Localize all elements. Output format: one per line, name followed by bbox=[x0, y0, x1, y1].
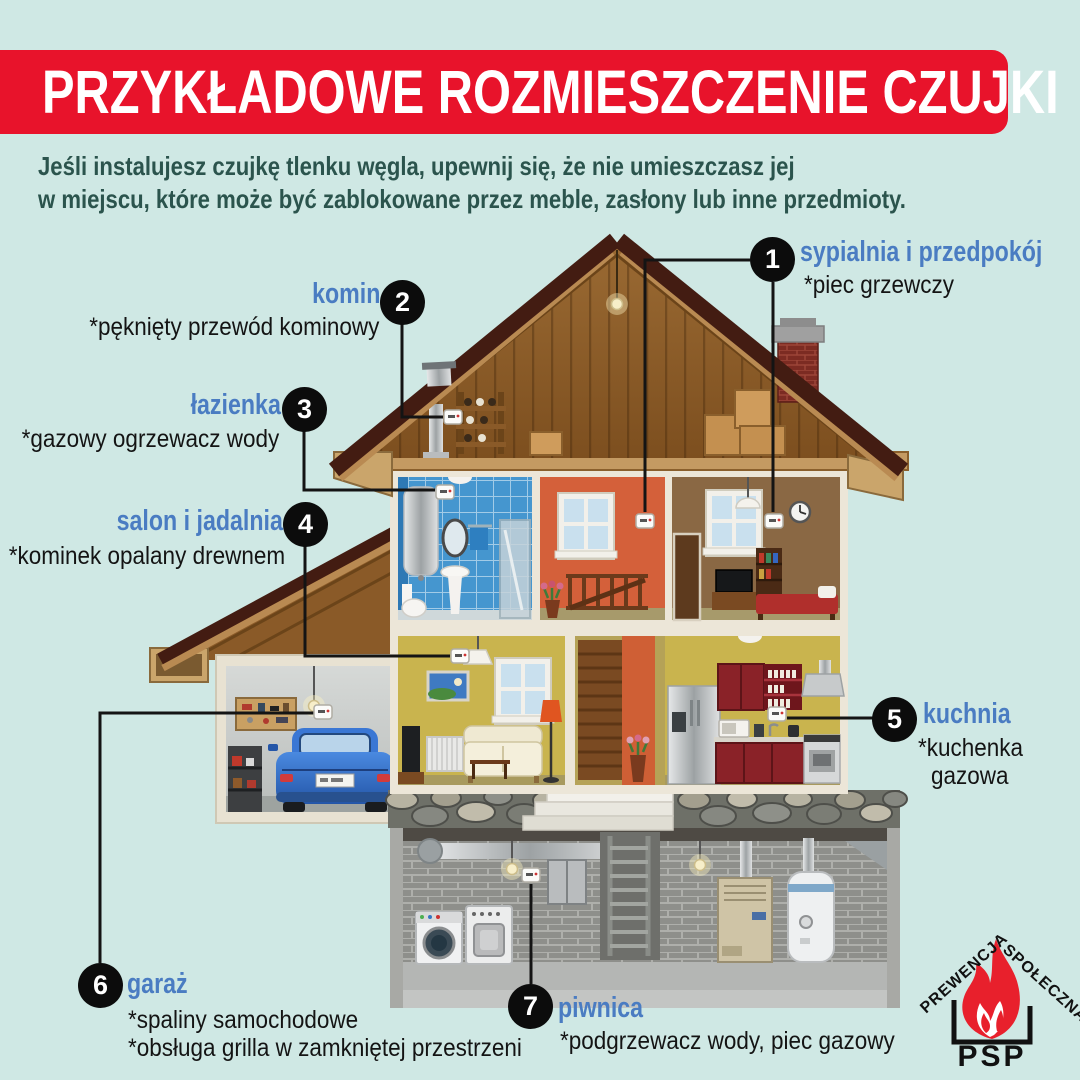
psp-prevention-logo: PREWENCJA SPOŁECZNA PSP bbox=[912, 918, 1080, 1080]
living-room bbox=[398, 636, 565, 785]
detector-living-room bbox=[451, 649, 469, 663]
marker-5: 5 bbox=[872, 697, 917, 742]
marker-1: 1 bbox=[750, 237, 795, 282]
detector-basement bbox=[522, 868, 540, 882]
label-garage-note-2: *obsługa grilla w zamkniętej przestrzeni bbox=[128, 1034, 566, 1063]
header-banner: PRZYKŁADOWE ROZMIESZCZENIE CZUJKI bbox=[0, 50, 1008, 134]
garage-shelf bbox=[228, 746, 262, 812]
detector-bedroom bbox=[765, 514, 783, 528]
label-garage-note-1: *spaliny samochodowe bbox=[128, 1006, 384, 1035]
label-basement-title: piwnica bbox=[558, 992, 664, 1025]
infographic-canvas: PRZYKŁADOWE ROZMIESZCZENIE CZUJKI Jeśli … bbox=[0, 0, 1080, 1080]
detector-attic-flue bbox=[444, 410, 462, 424]
label-kitchen-note-1: *kuchenka bbox=[918, 734, 1035, 763]
label-bedroom-hallway-note: *piec grzewczy bbox=[804, 271, 971, 300]
dryer bbox=[466, 906, 512, 964]
label-bathroom-note: *gazowy ogrzewacz wody bbox=[0, 425, 279, 454]
intro-line-1: Jeśli instalujesz czujkę tlenku węgla, u… bbox=[38, 150, 795, 183]
basement bbox=[390, 826, 900, 1008]
bathroom bbox=[398, 477, 532, 620]
detector-hallway bbox=[636, 514, 654, 528]
label-kitchen-title: kuchnia bbox=[923, 698, 1033, 731]
label-chimney-note: *pęknięty przewód kominowy bbox=[57, 313, 379, 342]
label-chimney-title: komin bbox=[295, 278, 380, 311]
detector-garage bbox=[314, 705, 332, 719]
marker-2: 2 bbox=[380, 280, 425, 325]
staircase bbox=[575, 636, 665, 785]
page-title: PRZYKŁADOWE ROZMIESZCZENIE CZUJKI bbox=[42, 57, 1059, 127]
label-bedroom-hallway-title: sypialnia i przedpokój bbox=[800, 236, 1080, 269]
marker-6: 6 bbox=[78, 963, 123, 1008]
intro-line-2: w miejscu, które może być zablokowane pr… bbox=[38, 183, 906, 216]
marker-7: 7 bbox=[508, 984, 553, 1029]
marker-4: 4 bbox=[283, 502, 328, 547]
garage bbox=[216, 655, 402, 823]
washer bbox=[416, 912, 462, 964]
kitchen bbox=[665, 636, 844, 785]
label-basement-note: *podgrzewacz wody, piec gazowy bbox=[560, 1027, 932, 1056]
label-garage-title: garaż bbox=[127, 968, 203, 1001]
detector-kitchen bbox=[768, 707, 786, 721]
foundation bbox=[386, 788, 907, 830]
intro-text: Jeśli instalujesz czujkę tlenku węgla, u… bbox=[38, 150, 1059, 216]
furnace bbox=[718, 878, 772, 962]
detector-bathroom bbox=[436, 485, 454, 499]
water-heater-basement bbox=[788, 872, 834, 962]
logo-abbr-psp: PSP bbox=[957, 1040, 1026, 1073]
label-bathroom-title: łazienka bbox=[168, 389, 281, 422]
marker-3: 3 bbox=[282, 387, 327, 432]
basement-stairs bbox=[600, 832, 660, 960]
label-living-room-note: *kominek opalany drewnem bbox=[0, 542, 285, 571]
label-living-room-title: salon i jadalnia bbox=[75, 505, 283, 538]
label-kitchen-note-2: gazowa bbox=[931, 762, 1017, 791]
bedroom bbox=[672, 477, 840, 620]
